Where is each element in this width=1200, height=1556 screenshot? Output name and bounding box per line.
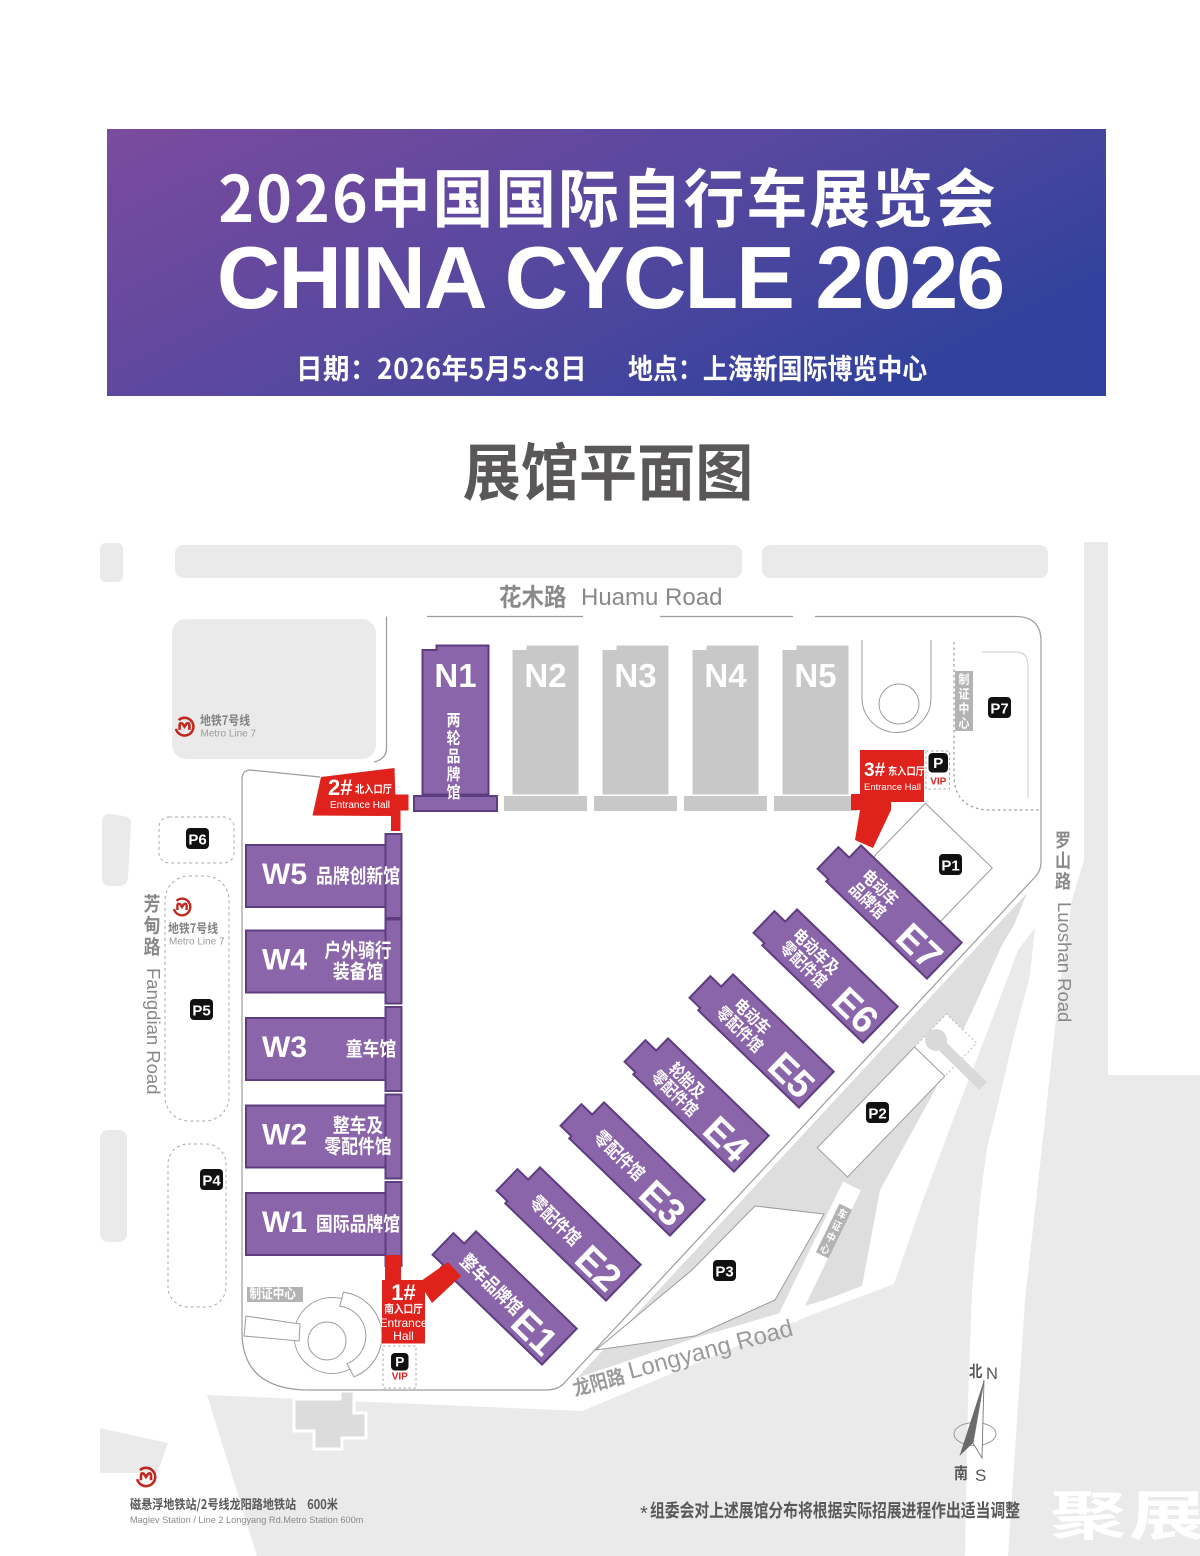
svg-text:W2: W2	[262, 1119, 307, 1152]
svg-text:P7: P7	[990, 701, 1008, 718]
svg-text:P: P	[395, 1354, 404, 1369]
svg-text:Luoshan Road: Luoshan Road	[1054, 902, 1075, 1022]
svg-text:*: *	[640, 1503, 648, 1525]
svg-text:Hall: Hall	[393, 1329, 414, 1343]
svg-text:W3: W3	[262, 1031, 307, 1064]
svg-text:S: S	[975, 1466, 986, 1485]
svg-text:N3: N3	[614, 657, 656, 694]
svg-text:W4: W4	[262, 944, 307, 977]
svg-text:VIP: VIP	[930, 777, 946, 788]
svg-text:Entrance: Entrance	[379, 1316, 427, 1330]
svg-text:P6: P6	[188, 832, 206, 849]
svg-text:W5: W5	[262, 858, 307, 891]
svg-text:P1: P1	[941, 858, 959, 875]
svg-text:N2: N2	[524, 657, 566, 694]
svg-text:1#: 1#	[391, 1280, 415, 1305]
svg-text:N: N	[986, 1365, 998, 1383]
svg-text:P2: P2	[868, 1106, 886, 1123]
svg-text:Entrance Hall: Entrance Hall	[330, 800, 390, 811]
svg-text:P4: P4	[202, 1173, 221, 1190]
svg-text:2#: 2#	[328, 775, 352, 800]
svg-text:P5: P5	[192, 1003, 210, 1020]
svg-text:N4: N4	[704, 657, 747, 694]
svg-text:N1: N1	[434, 657, 476, 694]
svg-text:CHINA CYCLE 2026: CHINA CYCLE 2026	[217, 228, 1003, 327]
svg-text:Metro Line 7: Metro Line 7	[169, 937, 225, 948]
svg-text:Entrance Hall: Entrance Hall	[864, 782, 921, 793]
svg-text:3#: 3#	[864, 760, 886, 781]
svg-text:Metro Line 7: Metro Line 7	[201, 729, 257, 740]
svg-text:P3: P3	[715, 1264, 733, 1281]
svg-text:W1: W1	[262, 1206, 307, 1239]
svg-text:N5: N5	[794, 657, 836, 694]
svg-text:Huamu Road: Huamu Road	[581, 584, 722, 611]
svg-text:P: P	[933, 755, 943, 772]
svg-text:VIP: VIP	[392, 1372, 408, 1383]
svg-text:Maglev Station / Line 2 Longya: Maglev Station / Line 2 Longyang Rd.Metr…	[130, 1515, 364, 1525]
svg-text:Fangdian Road: Fangdian Road	[143, 968, 164, 1095]
